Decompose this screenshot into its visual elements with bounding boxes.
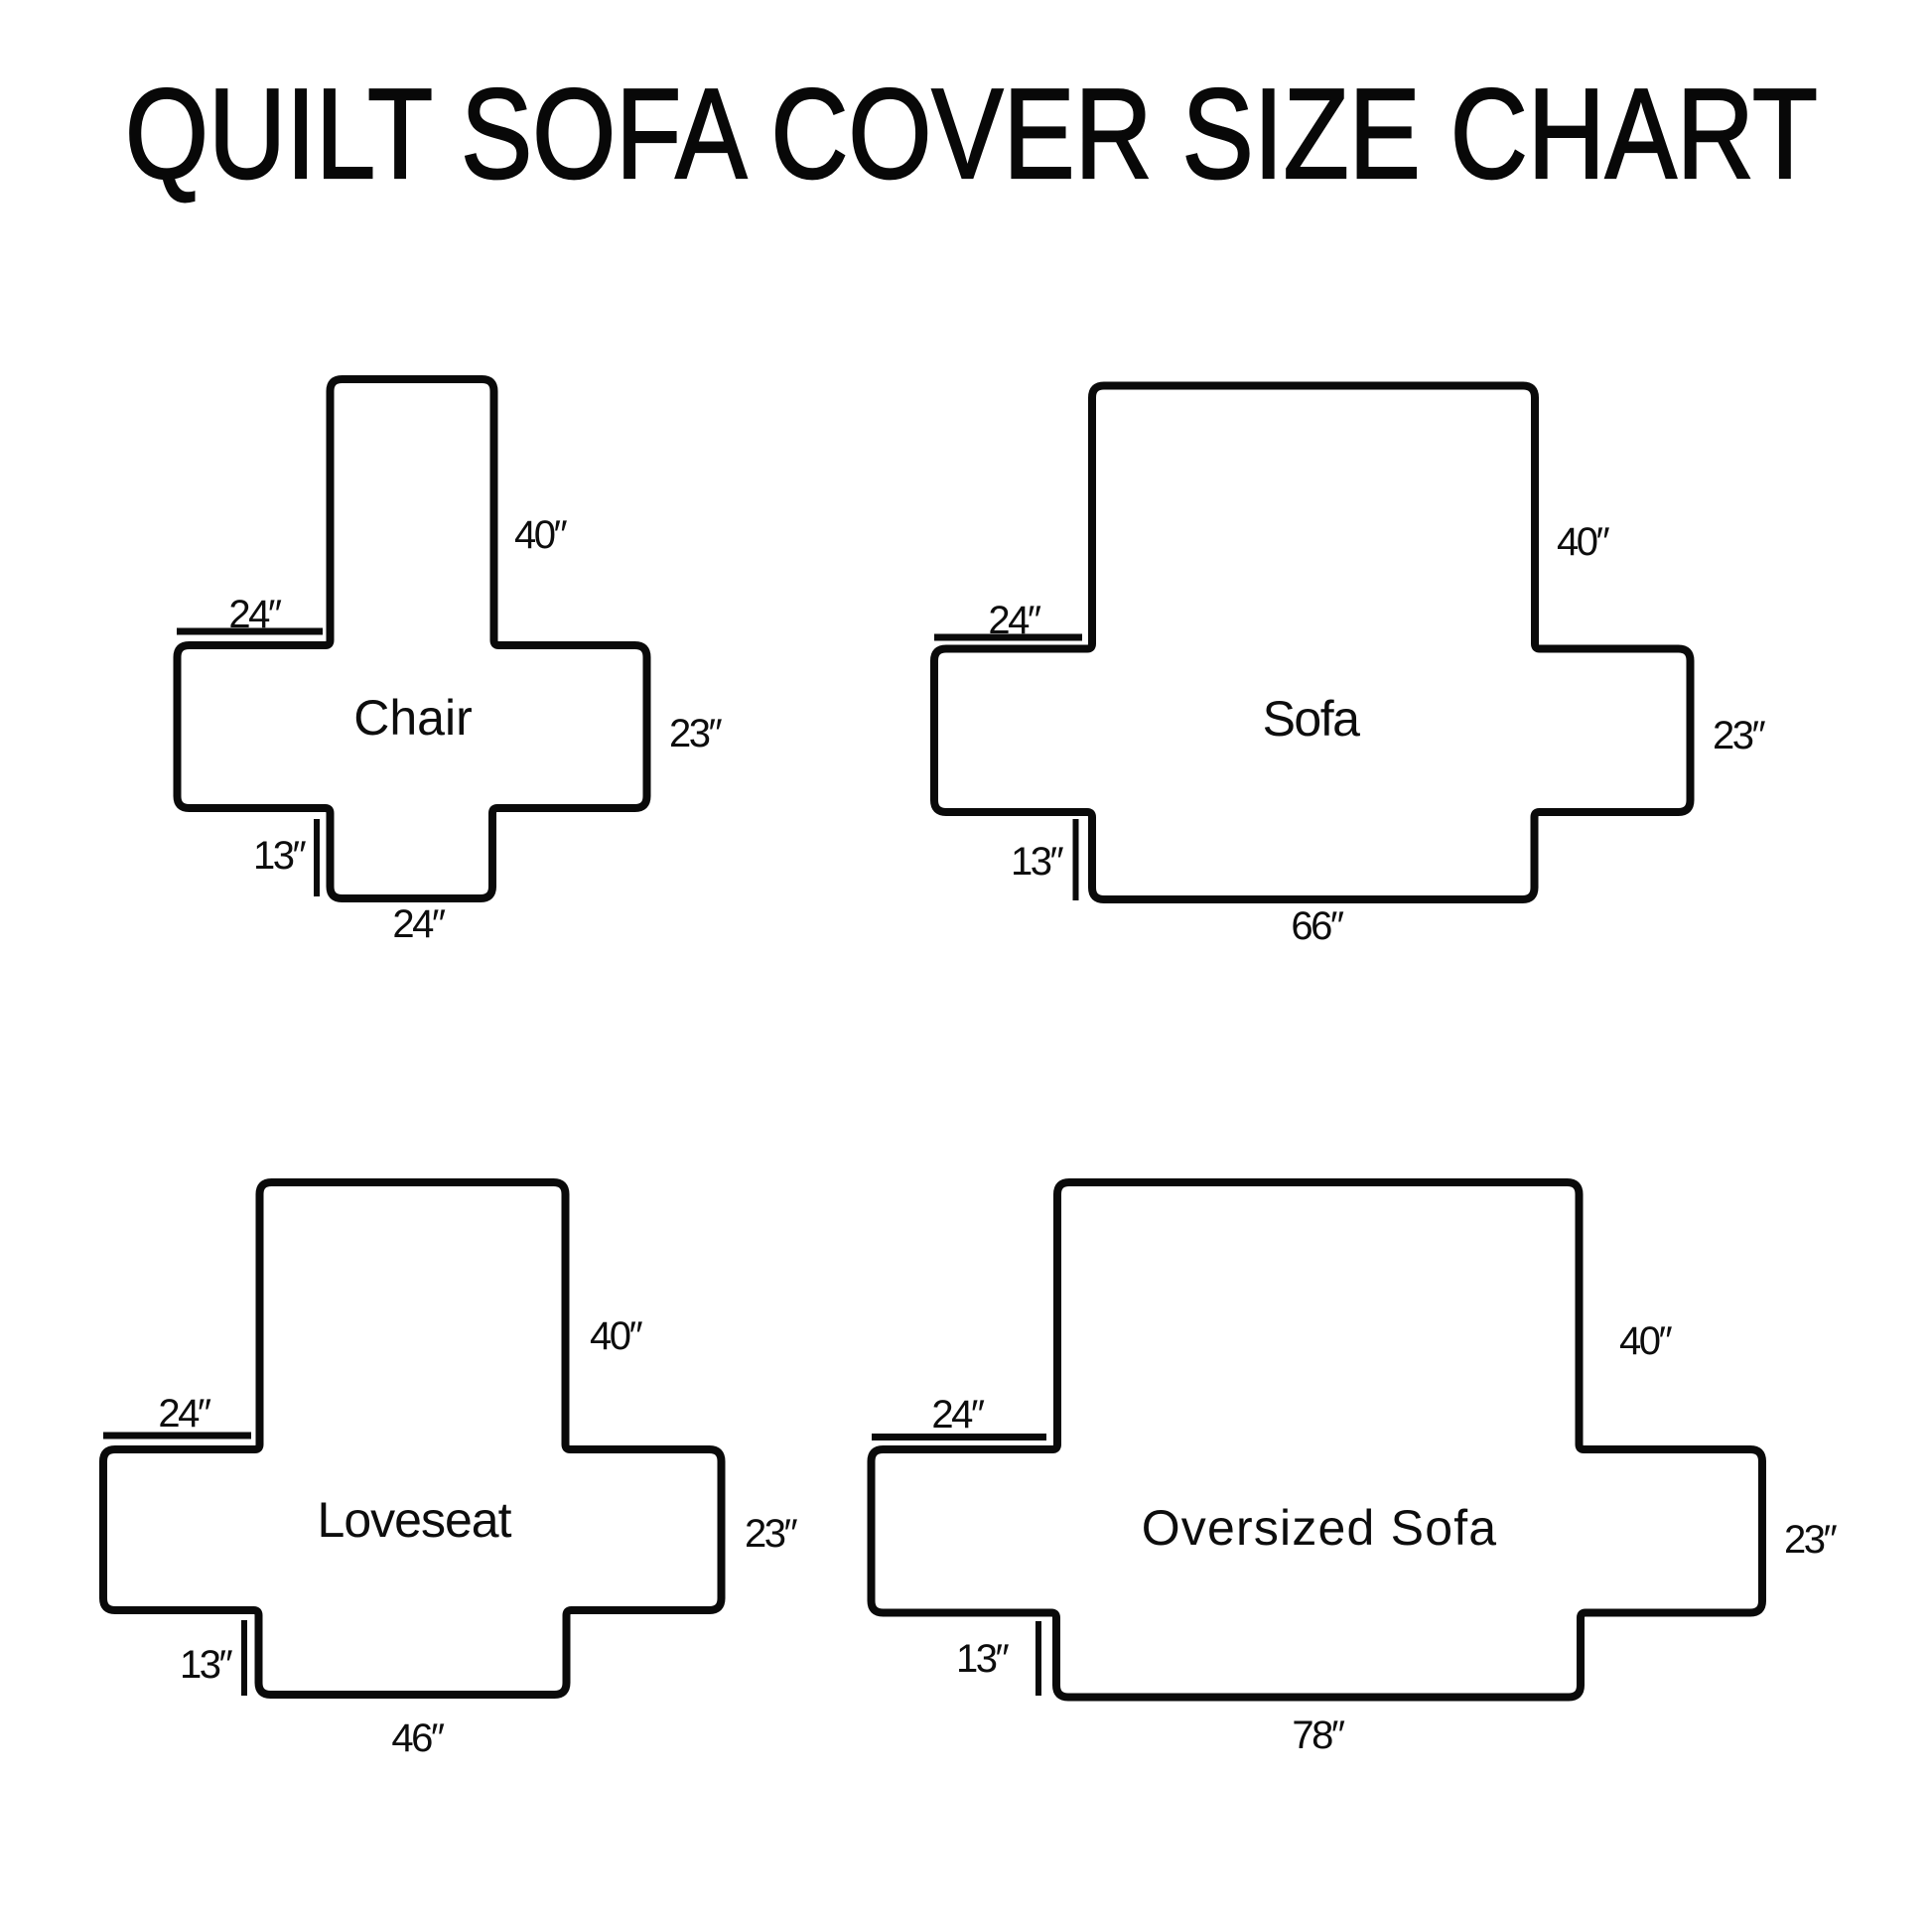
svg-text:Sofa: Sofa (1263, 691, 1361, 747)
svg-text:13″: 13″ (253, 834, 306, 878)
svg-text:40″: 40″ (1557, 520, 1609, 564)
svg-text:13″: 13″ (956, 1637, 1009, 1681)
svg-text:Loveseat: Loveseat (318, 1492, 512, 1548)
svg-text:24″: 24″ (988, 599, 1040, 642)
svg-text:23″: 23″ (745, 1512, 797, 1556)
svg-text:24″: 24″ (931, 1393, 984, 1437)
svg-text:78″: 78″ (1292, 1713, 1344, 1757)
svg-text:24″: 24″ (158, 1392, 210, 1436)
svg-text:Chair: Chair (353, 690, 472, 746)
svg-text:23″: 23″ (669, 712, 722, 755)
svg-text:13″: 13″ (1011, 840, 1063, 884)
svg-text:Oversized Sofa: Oversized Sofa (1142, 1500, 1498, 1556)
svg-text:40″: 40″ (1619, 1319, 1672, 1363)
svg-text:23″: 23″ (1784, 1518, 1837, 1562)
svg-text:24″: 24″ (392, 902, 445, 946)
svg-text:23″: 23″ (1713, 714, 1765, 757)
svg-text:QUILT SOFA COVER SIZE CHART: QUILT SOFA COVER SIZE CHART (125, 63, 1818, 205)
svg-text:24″: 24″ (228, 593, 281, 636)
svg-text:13″: 13″ (180, 1643, 232, 1687)
svg-text:40″: 40″ (514, 513, 567, 557)
svg-text:40″: 40″ (590, 1314, 642, 1358)
svg-text:46″: 46″ (391, 1716, 444, 1760)
svg-text:66″: 66″ (1291, 904, 1343, 948)
